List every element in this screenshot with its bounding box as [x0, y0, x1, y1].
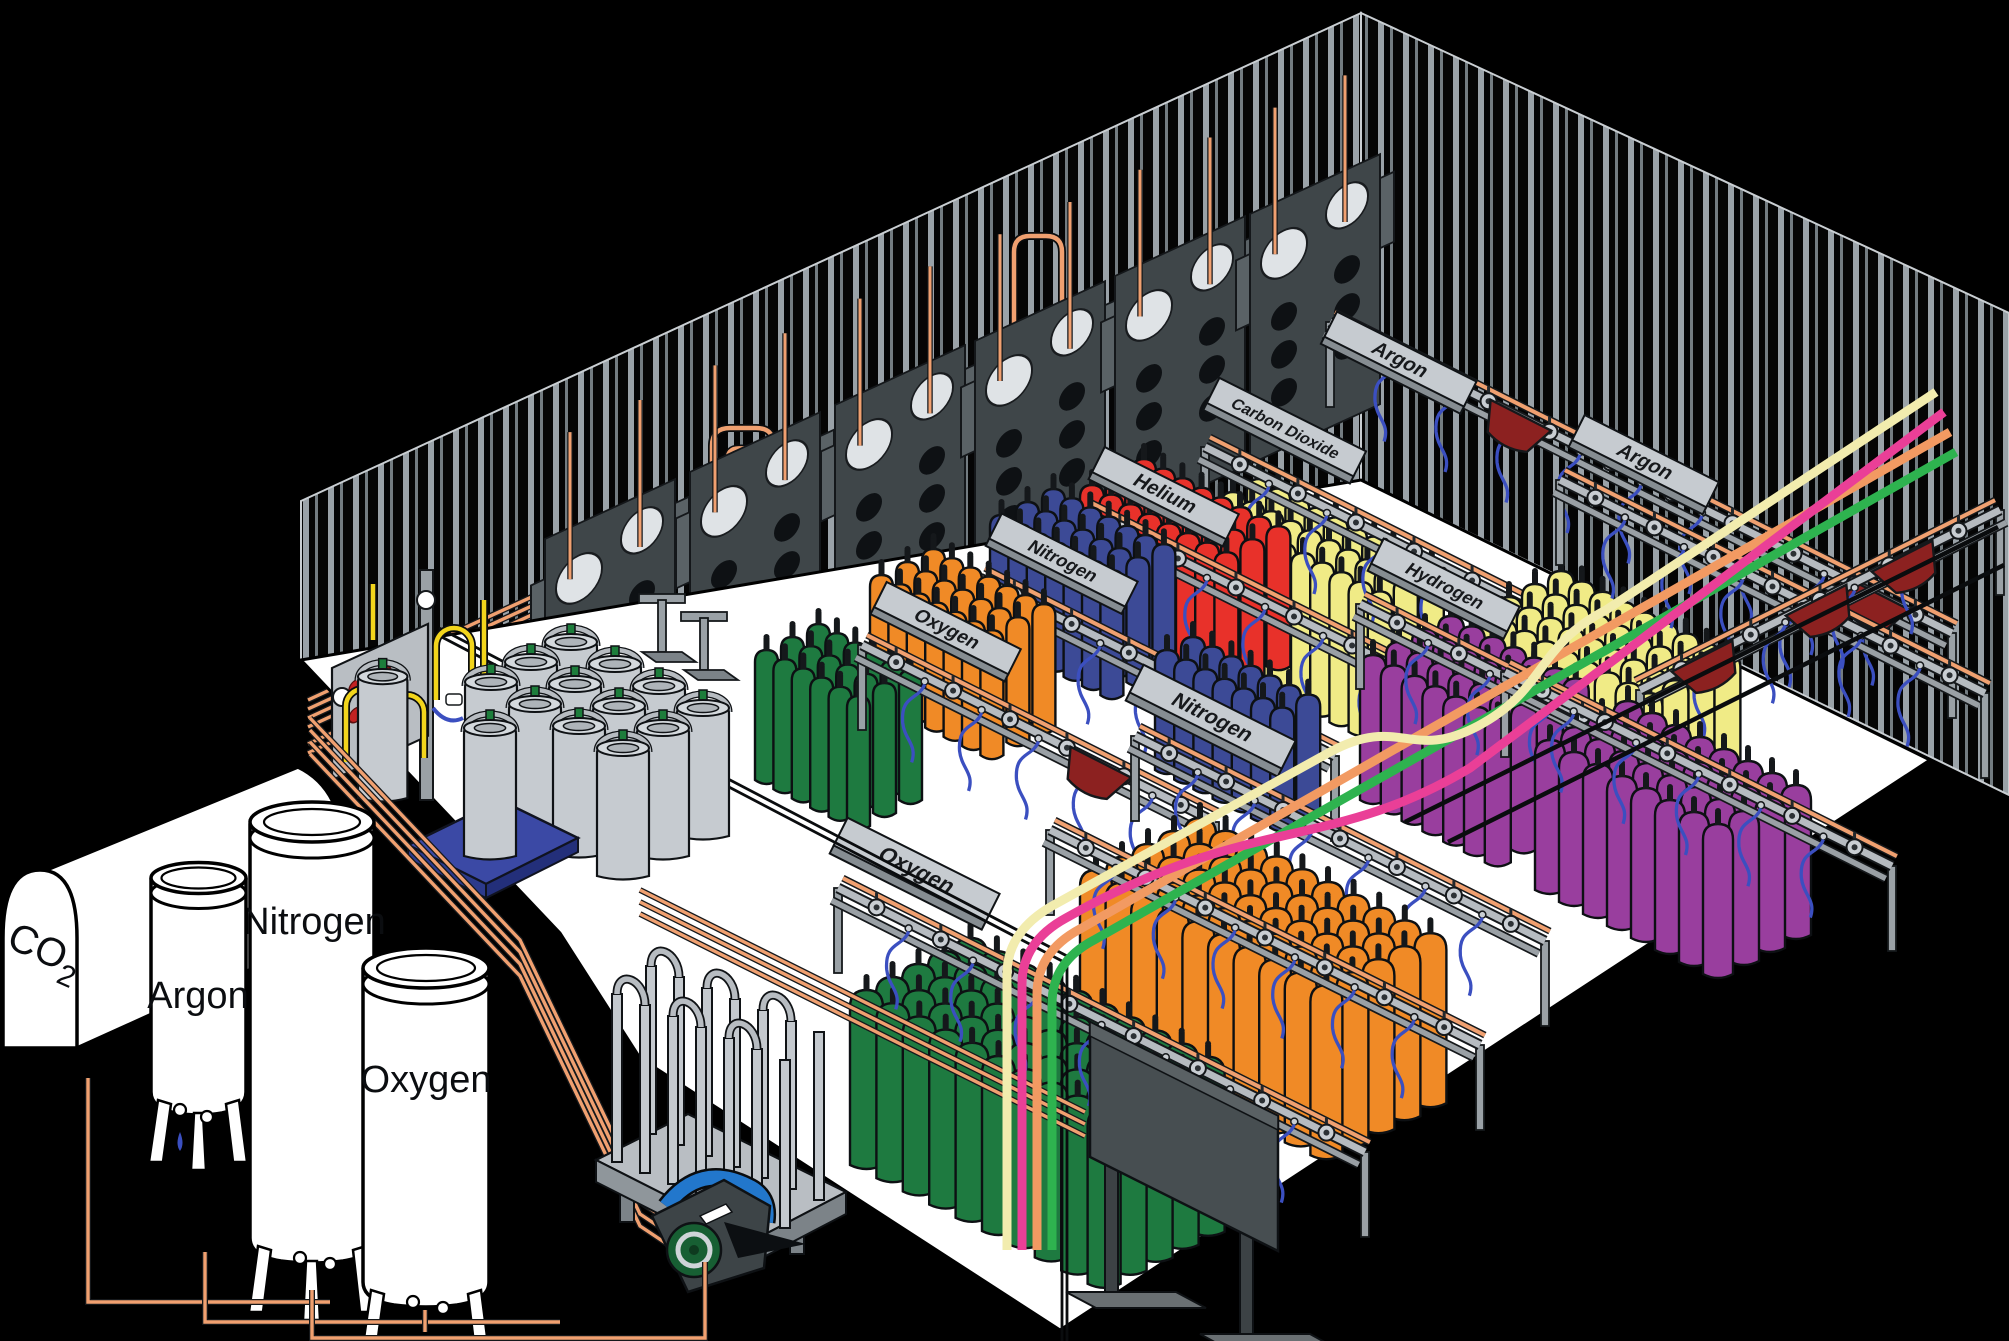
- cylinder-valve: [1199, 472, 1205, 478]
- cylinder-valve: [1721, 733, 1727, 739]
- cylinder-valve: [1610, 633, 1616, 639]
- cylinder-valve: [1023, 579, 1029, 585]
- cylinder-valve: [934, 587, 940, 593]
- tank-label: Nitrogen: [242, 901, 386, 943]
- dewar-rim-inner: [647, 724, 678, 733]
- rail-post: [1981, 693, 1989, 778]
- cylinder-valve: [1691, 796, 1697, 802]
- cylinder-valve: [1599, 698, 1605, 704]
- cylinder-valve: [1432, 670, 1438, 676]
- dewar-rim-inner: [475, 678, 506, 687]
- cylinder-valve: [1075, 1080, 1081, 1086]
- cylinder-valve: [1324, 943, 1330, 949]
- pipe-clamp: [950, 688, 956, 694]
- cylinder-valve: [1273, 892, 1279, 898]
- cylinder-valve: [1160, 453, 1166, 459]
- cylinder-valve: [1375, 943, 1381, 949]
- cylinder-valve: [1248, 650, 1254, 656]
- pipe-clamp: [1233, 584, 1239, 590]
- cylinder-valve: [1615, 610, 1621, 616]
- pipe-clamp: [1322, 964, 1328, 970]
- cylinder-valve: [1324, 918, 1330, 924]
- cylinder-valve: [1595, 748, 1601, 754]
- cylinder-valve: [989, 614, 995, 620]
- cylinder-valve: [819, 662, 825, 668]
- cylinder-valve: [1531, 642, 1537, 648]
- cylinder-valve: [1625, 685, 1631, 691]
- hose-connector: [1262, 604, 1269, 611]
- cylinder-valve: [879, 559, 885, 565]
- cylinder-valve: [764, 634, 770, 640]
- cylinder-valve: [1241, 672, 1247, 678]
- vaporizer-tube: [668, 1016, 678, 1184]
- cylinder-valve: [1532, 568, 1538, 574]
- pipe-clamp: [938, 937, 944, 943]
- cylinder-valve: [1579, 565, 1585, 571]
- cylinder-valve: [1547, 724, 1553, 730]
- hose-connector: [1695, 771, 1702, 778]
- cylinder-valve: [1505, 655, 1511, 661]
- cylinder-valve: [1626, 667, 1632, 673]
- cylinder-valve: [1275, 510, 1281, 516]
- cylinder-valve: [1237, 491, 1243, 497]
- pipe-clamp: [1888, 643, 1894, 649]
- cylinder-valve: [1273, 866, 1279, 872]
- hose-connector: [1320, 633, 1327, 640]
- cylinder-valve: [986, 561, 992, 567]
- cylinder-valve: [1179, 1028, 1185, 1034]
- cylinder-valve: [967, 551, 973, 557]
- cylinder-valve: [969, 1027, 975, 1033]
- cylinder-valve: [1484, 644, 1490, 650]
- wall-fitting: [446, 694, 462, 705]
- tank-body: [250, 825, 374, 1263]
- cylinder-valve: [1376, 917, 1382, 923]
- cylinder-valve: [1704, 628, 1710, 634]
- pipe-clamp: [1394, 620, 1400, 626]
- cylinder-valve: [864, 974, 870, 980]
- hose-connector: [1035, 735, 1042, 742]
- pipe-clamp: [1259, 1097, 1265, 1103]
- cylinder-valve: [1035, 517, 1041, 523]
- dewar-rim-inner: [368, 672, 398, 681]
- cylinder-valve: [1080, 514, 1086, 520]
- pipe-clamp: [1451, 892, 1457, 898]
- cylinder-valve: [978, 583, 984, 589]
- hose-connector: [1351, 984, 1358, 991]
- cylinder-valve: [1218, 481, 1224, 487]
- storage-tank-oxygen: Oxygen: [361, 948, 492, 1341]
- cylinder-valve: [1228, 640, 1234, 646]
- cylinder-valve: [1051, 473, 1057, 479]
- cylinder-valve: [1267, 659, 1273, 665]
- vaporizer-tube: [780, 1060, 790, 1228]
- pipe-clamp: [1727, 782, 1733, 788]
- cylinder-valve: [1091, 545, 1097, 551]
- pipe-clamp: [1381, 994, 1387, 1000]
- rail-post: [1541, 941, 1549, 1026]
- cylinder-valve: [1221, 892, 1227, 898]
- cylinder-valve: [897, 568, 903, 574]
- cylinder-valve: [808, 630, 814, 636]
- cylinder-valve: [1767, 782, 1773, 788]
- storage-tank-argon: Argon: [147, 863, 248, 1171]
- cylinder-valve: [1197, 802, 1203, 808]
- gas-cylinder: [1032, 604, 1055, 733]
- scene-illustration: Argon Carbon Dioxide Helium Nitrogen Oxy…: [0, 0, 2009, 1341]
- cylinder-valve: [999, 499, 1005, 505]
- cylinder-valve: [1069, 482, 1075, 488]
- gas-cylinder: [1703, 824, 1733, 978]
- cylinder-valve: [1636, 620, 1642, 626]
- cylinder-valve: [1171, 815, 1177, 821]
- cylinder-valve: [1402, 904, 1408, 910]
- cylinder-valve: [1697, 721, 1703, 727]
- cylinder-valve: [1260, 682, 1266, 688]
- pipe-clamp: [1852, 844, 1858, 850]
- cylinder-valve: [1683, 617, 1689, 623]
- cylinder-valve: [960, 574, 966, 580]
- cylinder-valve: [1652, 654, 1658, 660]
- cylinder-valve: [1574, 589, 1580, 595]
- cylinder-valve: [1209, 631, 1215, 637]
- cylinder-valve: [890, 961, 896, 967]
- cylinder-valve: [1299, 853, 1305, 859]
- pipe-clamp: [1083, 845, 1089, 851]
- pipe-clamp: [1456, 651, 1462, 657]
- cylinder-valve: [1568, 612, 1574, 618]
- pipe-clamp: [1069, 621, 1075, 627]
- dewar-rim-inner: [599, 660, 630, 669]
- cylinder-valve: [1041, 588, 1047, 594]
- pipe-clamp: [1166, 750, 1172, 756]
- dewar-on-pallet: [464, 710, 516, 860]
- cylinder-valve: [1745, 745, 1751, 751]
- cylinder-valve: [1370, 639, 1376, 645]
- cylinder-valve: [1179, 462, 1185, 468]
- cylinder-valve: [1510, 631, 1516, 637]
- cylinder-valve: [1793, 769, 1799, 775]
- pipe-clamp: [1195, 1065, 1201, 1071]
- hose-connector: [1323, 509, 1330, 516]
- cylinder-valve: [1319, 547, 1325, 553]
- cylinder-valve: [1647, 722, 1653, 728]
- cylinder-valve: [916, 974, 922, 980]
- pipe-clamp: [1337, 836, 1343, 842]
- hose-connector: [1479, 911, 1486, 918]
- pipe-clamp: [1664, 750, 1670, 756]
- tank-label: Oxygen: [361, 1059, 492, 1101]
- hose-connector: [1291, 954, 1298, 961]
- cylinder-valve: [1769, 757, 1775, 763]
- cylinder-valve: [1325, 866, 1331, 872]
- cylinder-valve: [916, 1000, 922, 1006]
- cylinder-valve: [1279, 692, 1285, 698]
- dewar-rim-inner: [687, 704, 718, 713]
- gas-filling-plant-illustration: Argon Carbon Dioxide Helium Nitrogen Oxy…: [0, 0, 2009, 1341]
- cylinder-valve: [1286, 669, 1292, 675]
- pipe-clamp: [1178, 802, 1184, 808]
- hose-connector: [1149, 792, 1156, 799]
- cylinder-valve: [1299, 879, 1305, 885]
- cylinder-valve: [1594, 599, 1600, 605]
- cylinder-valve: [845, 649, 851, 655]
- cylinder-valve: [1376, 892, 1382, 898]
- dewar-rim-inner: [603, 702, 634, 711]
- hose-connector: [921, 678, 928, 685]
- cylinder-valve: [949, 542, 955, 548]
- cylinder-valve: [994, 935, 1000, 941]
- pipe-clamp: [1131, 1033, 1137, 1039]
- cylinder-valve: [837, 671, 843, 677]
- cylinder-valve: [1584, 646, 1590, 652]
- dewar-rim-inner: [607, 744, 638, 753]
- cylinder-valve: [1298, 931, 1304, 937]
- pipe-clamp: [1651, 524, 1657, 530]
- cylinder-valve: [1719, 758, 1725, 764]
- cylinder-valve: [1620, 586, 1626, 592]
- pipe-clamp: [1262, 935, 1268, 941]
- cylinder-valve: [1205, 1041, 1211, 1047]
- dewar-rim-inner: [563, 722, 594, 731]
- pipe-clamp: [1323, 1130, 1329, 1136]
- cylinder-valve: [1443, 623, 1449, 629]
- pipe-clamp: [1790, 551, 1796, 557]
- cylinder-valve: [1152, 1014, 1158, 1020]
- cylinder-valve: [1135, 541, 1141, 547]
- cylinder-valve: [834, 617, 840, 623]
- cylinder-valve: [1106, 501, 1112, 507]
- hose-connector: [1820, 833, 1827, 840]
- cylinder-valve: [1351, 879, 1357, 885]
- cylinder-valve: [971, 605, 977, 611]
- cylinder-valve: [1527, 591, 1533, 597]
- pipe-clamp: [1295, 490, 1301, 496]
- dewar-body: [597, 744, 649, 880]
- cylinder-valve: [1072, 536, 1078, 542]
- hose-connector: [969, 957, 976, 964]
- hose-connector: [1757, 802, 1764, 809]
- cylinder-valve: [1202, 653, 1208, 659]
- cylinder-valve: [1145, 828, 1151, 834]
- hose-connector: [905, 925, 912, 932]
- cylinder-valve: [1190, 621, 1196, 627]
- cylinder-valve: [1025, 486, 1031, 492]
- cylinder-valve: [1667, 784, 1673, 790]
- cylinder-valve: [915, 577, 921, 583]
- pipe-clamp: [1789, 813, 1795, 819]
- hose-connector: [1194, 769, 1201, 776]
- cylinder-valve: [905, 546, 911, 552]
- cylinder-valve: [1715, 808, 1721, 814]
- vaporizer-tube: [612, 994, 622, 1162]
- cylinder-valve: [941, 564, 947, 570]
- cylinder-valve: [1305, 679, 1311, 685]
- cylinder-valve: [1087, 491, 1093, 497]
- cylinder-valve: [1273, 918, 1279, 924]
- cylinder-valve: [826, 639, 832, 645]
- hose-connector: [1851, 584, 1858, 591]
- cylinder-valve: [1671, 734, 1677, 740]
- cylinder-valve: [1164, 634, 1170, 640]
- cylinder-valve: [1350, 930, 1356, 936]
- pipe-clamp: [1394, 864, 1400, 870]
- cylinder-valve: [943, 1014, 949, 1020]
- hose-connector: [1621, 514, 1628, 521]
- cylinder-valve: [790, 621, 796, 627]
- cylinder-valve: [1422, 613, 1428, 619]
- pipe-clamp: [1064, 745, 1070, 751]
- dewar-rim-inner: [474, 724, 505, 733]
- cylinder-valve: [1678, 641, 1684, 647]
- cylinder-valve: [1542, 625, 1548, 631]
- cylinder-valve: [1061, 504, 1067, 510]
- pipe-clamp: [1126, 650, 1132, 656]
- hose-connector: [1680, 544, 1687, 551]
- pipe-clamp: [1441, 1024, 1447, 1030]
- cylinder-valve: [1643, 772, 1649, 778]
- hose-connector: [1422, 883, 1429, 890]
- cylinder-valve: [952, 596, 958, 602]
- cylinder-valve: [1143, 519, 1149, 525]
- pipe-clamp: [1748, 632, 1754, 638]
- rail-post: [1476, 1045, 1484, 1130]
- cylinder-valve: [1222, 663, 1228, 669]
- cylinder-valve: [1004, 570, 1010, 576]
- cylinder-valve: [816, 608, 822, 614]
- cylinder-valve: [1098, 523, 1104, 529]
- cylinder-valve: [1017, 508, 1023, 514]
- cylinder-valve: [1015, 601, 1021, 607]
- cylinder-valve: [1073, 975, 1079, 981]
- cylinder-valve: [1548, 602, 1554, 608]
- hose-connector: [1411, 1014, 1418, 1021]
- cylinder-valve: [1126, 1001, 1132, 1007]
- cylinder-valve: [1299, 905, 1305, 911]
- cylinder-valve: [942, 987, 948, 993]
- cylinder-valve: [923, 555, 929, 561]
- cylinder-valve: [1600, 576, 1606, 582]
- cylinder-valve: [1522, 615, 1528, 621]
- dewar-rim-inner: [559, 680, 590, 689]
- hose-connector: [1570, 708, 1577, 715]
- pipe-clamp: [1947, 672, 1953, 678]
- pipe-clamp: [893, 659, 899, 665]
- cylinder-valve: [1673, 709, 1679, 715]
- pipe-clamp: [1353, 519, 1359, 525]
- hose-connector: [978, 706, 985, 713]
- cylinder-valve: [1349, 956, 1355, 962]
- cylinder-valve: [1506, 581, 1512, 587]
- cylinder-valve: [969, 1001, 975, 1007]
- hose-connector: [1424, 640, 1431, 647]
- dewar-body: [358, 673, 407, 802]
- pipe-clamp: [1349, 643, 1355, 649]
- cylinder-valve: [931, 533, 937, 539]
- hose-connector: [1203, 574, 1210, 581]
- cylinder-valve: [1338, 556, 1344, 562]
- pipe-clamp: [1291, 614, 1297, 620]
- hose-connector: [1782, 619, 1789, 626]
- hose-connector: [1917, 662, 1924, 669]
- cylinder-valve: [1695, 746, 1701, 752]
- cylinder-valve: [997, 592, 1003, 598]
- pipe-clamp: [1592, 495, 1598, 501]
- cylinder-valve: [1100, 988, 1106, 994]
- dewar-rim-inner: [519, 700, 550, 709]
- pipe-clamp: [1770, 584, 1776, 590]
- rail-post: [1888, 866, 1896, 951]
- hose-connector: [1265, 480, 1272, 487]
- cylinder-valve: [1391, 649, 1397, 655]
- pipe-clamp: [1955, 528, 1961, 534]
- cylinder-valve: [852, 626, 858, 632]
- cylinder-valve: [1141, 443, 1147, 449]
- pipe-clamp: [1007, 716, 1013, 722]
- pipe-clamp: [1223, 779, 1229, 785]
- cylinder-valve: [1117, 532, 1123, 538]
- pipe-clamp: [874, 904, 880, 910]
- cylinder-valve: [782, 643, 788, 649]
- hose-connector: [1232, 924, 1239, 931]
- dewar-rim-inner: [515, 658, 546, 667]
- dewar-body: [464, 724, 516, 860]
- cylinder-valve: [1249, 523, 1255, 529]
- cylinder-valve: [1743, 770, 1749, 776]
- cylinder-valve: [1247, 879, 1253, 885]
- cylinder-valve: [1247, 905, 1253, 911]
- dewar-rim-inner: [555, 638, 586, 647]
- gas-cylinder: [873, 683, 896, 817]
- rail-post: [1361, 1152, 1369, 1237]
- cylinder-valve: [1054, 527, 1060, 533]
- dewar-rim-inner: [643, 682, 674, 691]
- cylinder-valve: [1119, 841, 1125, 847]
- cylinder-valve: [1109, 554, 1115, 560]
- vaporizer-tube: [640, 1005, 650, 1173]
- cylinder-valve: [1427, 917, 1433, 923]
- cylinder-valve: [995, 1014, 1001, 1020]
- cylinder-valve: [1183, 644, 1189, 650]
- cylinder-valve: [996, 1040, 1002, 1046]
- hose-connector: [1365, 854, 1372, 861]
- cylinder-valve: [1553, 578, 1559, 584]
- hose-connector: [1820, 570, 1827, 577]
- hose-connector: [1291, 1118, 1298, 1125]
- hose-connector: [1097, 640, 1104, 647]
- cylinder-valve: [1464, 634, 1470, 640]
- cylinder-valve: [1350, 905, 1356, 911]
- pipe-clamp: [1202, 905, 1208, 911]
- hose-connector: [1486, 671, 1493, 678]
- cylinder-valve: [1161, 528, 1167, 534]
- pipe-clamp: [1237, 461, 1243, 467]
- tank-label: Argon: [147, 975, 248, 1017]
- cylinder-valve: [800, 652, 806, 658]
- cylinder-valve: [1124, 510, 1130, 516]
- cylinder-valve: [1256, 501, 1262, 507]
- cylinder-valve: [1453, 681, 1459, 687]
- tank-body: [363, 970, 489, 1307]
- vaporizer-tube: [814, 1032, 824, 1200]
- pipe-clamp: [1508, 921, 1514, 927]
- cylinder-valve: [1043, 495, 1049, 501]
- pipe-clamp: [1710, 554, 1716, 560]
- cylinder-valve: [1325, 892, 1331, 898]
- cylinder-valve: [1401, 930, 1407, 936]
